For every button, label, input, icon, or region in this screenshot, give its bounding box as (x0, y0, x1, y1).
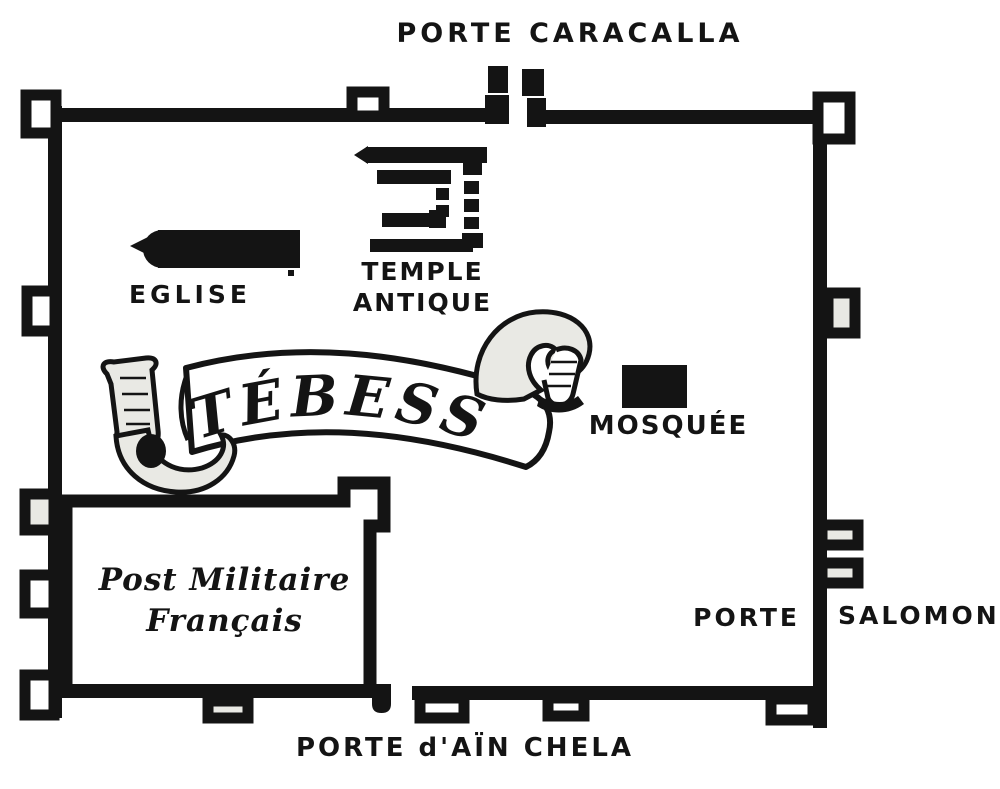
banner-left-shadow (136, 434, 166, 468)
wall-tower (25, 494, 54, 530)
temple-antique-label-line2: ANTIQUE (335, 287, 510, 318)
temple-antique-label: TEMPLE ANTIQUE (335, 256, 510, 318)
north-wall-east-segment (532, 110, 824, 124)
eglise-dot (288, 270, 294, 276)
city-plan-drawing: TÉBESSA (0, 0, 1000, 789)
wall-tower (26, 95, 56, 133)
temple-wall (463, 147, 482, 175)
temple-antique-label-line1: TEMPLE (335, 256, 510, 287)
city-map: TÉBESSA PORTE CARACALLA TEMPLE ANTIQUE E… (0, 0, 1000, 789)
wall-tower (818, 97, 850, 139)
wall-tower (548, 698, 584, 716)
north-wall-west-segment (55, 108, 488, 122)
wall-tower (822, 563, 858, 583)
mosquee-label: MOSQUÉE (576, 411, 761, 441)
wall-tower (27, 291, 55, 331)
temple-antique-plan (354, 146, 487, 252)
temple-wall (429, 210, 446, 228)
wall-tower (420, 698, 464, 718)
wall-tower (771, 699, 813, 720)
wall-tower (208, 701, 248, 718)
eglise-nave (158, 230, 300, 268)
south-wall-east-segment (412, 686, 816, 700)
porte-caracalla-gate-pillar (527, 98, 546, 127)
porte-caracalla-gate (485, 66, 546, 127)
temple-wall-tip (354, 146, 368, 164)
temple-column (464, 181, 479, 194)
temple-column (464, 217, 479, 229)
mosquee-plan (622, 365, 687, 408)
post-militaire-label: Post Militaire Français (72, 560, 377, 642)
porte-caracalla-gate-pillar (485, 95, 509, 124)
porte-ain-chela-label: PORTE d'AÏN CHELA (280, 733, 650, 763)
porte-caracalla-label: PORTE CARACALLA (395, 18, 745, 49)
temple-column (464, 199, 479, 212)
wall-tower (25, 575, 54, 613)
eglise-plan (130, 230, 300, 276)
wall-tower (822, 525, 858, 545)
porte-salomon-label-left: PORTE (672, 603, 800, 632)
temple-wall (377, 170, 451, 184)
east-wall (813, 112, 827, 728)
porte-caracalla-gate-pillar (522, 69, 544, 96)
wall-tower (25, 675, 54, 715)
tebessa-banner-title: TÉBESSA (0, 0, 498, 457)
temple-wall (370, 239, 473, 252)
porte-salomon-label-right: SALOMON (838, 601, 998, 630)
eglise-label: EGLISE (120, 280, 260, 309)
post-militaire-label-line2: Français (72, 601, 377, 642)
wall-tower (352, 92, 384, 116)
wall-tower (828, 293, 855, 333)
porte-caracalla-gate-pillar (488, 66, 508, 93)
temple-column (436, 188, 449, 200)
post-militaire-label-line1: Post Militaire (72, 560, 377, 601)
